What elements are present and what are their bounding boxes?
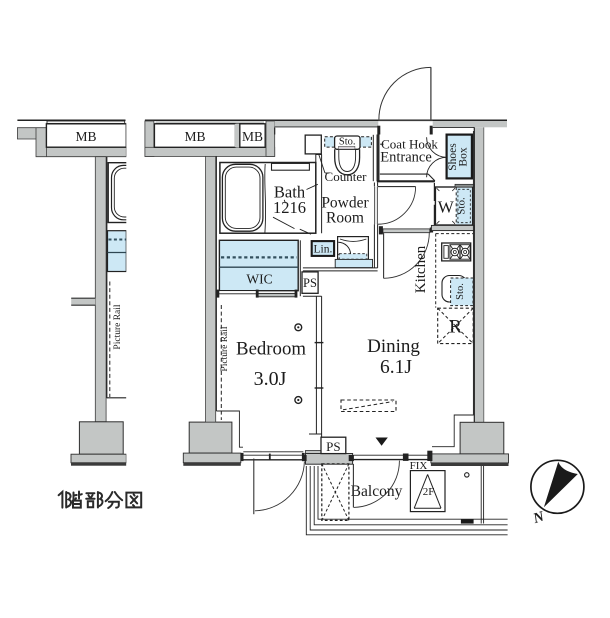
svg-text:R: R bbox=[449, 317, 462, 338]
svg-text:Lin.: Lin. bbox=[313, 244, 332, 256]
svg-text:2F: 2F bbox=[423, 486, 435, 498]
svg-text:Balcony: Balcony bbox=[351, 483, 403, 500]
svg-text:PS: PS bbox=[326, 439, 340, 454]
svg-text:N: N bbox=[530, 508, 546, 527]
svg-text:PS: PS bbox=[303, 276, 317, 290]
svg-text:WIC: WIC bbox=[246, 271, 272, 286]
svg-text:Sto.: Sto. bbox=[456, 197, 468, 215]
svg-text:3.0J: 3.0J bbox=[254, 368, 287, 390]
svg-text:Room: Room bbox=[326, 210, 364, 227]
svg-text:Picture Rail: Picture Rail bbox=[220, 326, 230, 371]
svg-text:MB: MB bbox=[242, 129, 263, 144]
svg-text:Kitchen: Kitchen bbox=[413, 245, 429, 293]
svg-text:Entrance: Entrance bbox=[380, 149, 432, 165]
svg-text:MB: MB bbox=[184, 129, 205, 144]
svg-text:Sto.: Sto. bbox=[455, 283, 466, 300]
svg-text:W: W bbox=[438, 197, 455, 216]
svg-text:Sto.: Sto. bbox=[339, 137, 356, 148]
svg-text:Dining: Dining bbox=[367, 336, 420, 357]
svg-text:1216: 1216 bbox=[273, 198, 306, 217]
svg-text:Box: Box bbox=[457, 147, 469, 166]
svg-text:Bedroom: Bedroom bbox=[236, 338, 306, 359]
svg-text:MB: MB bbox=[75, 129, 96, 144]
svg-text:6.1J: 6.1J bbox=[380, 357, 412, 378]
svg-text:Picture Rail: Picture Rail bbox=[113, 304, 123, 349]
